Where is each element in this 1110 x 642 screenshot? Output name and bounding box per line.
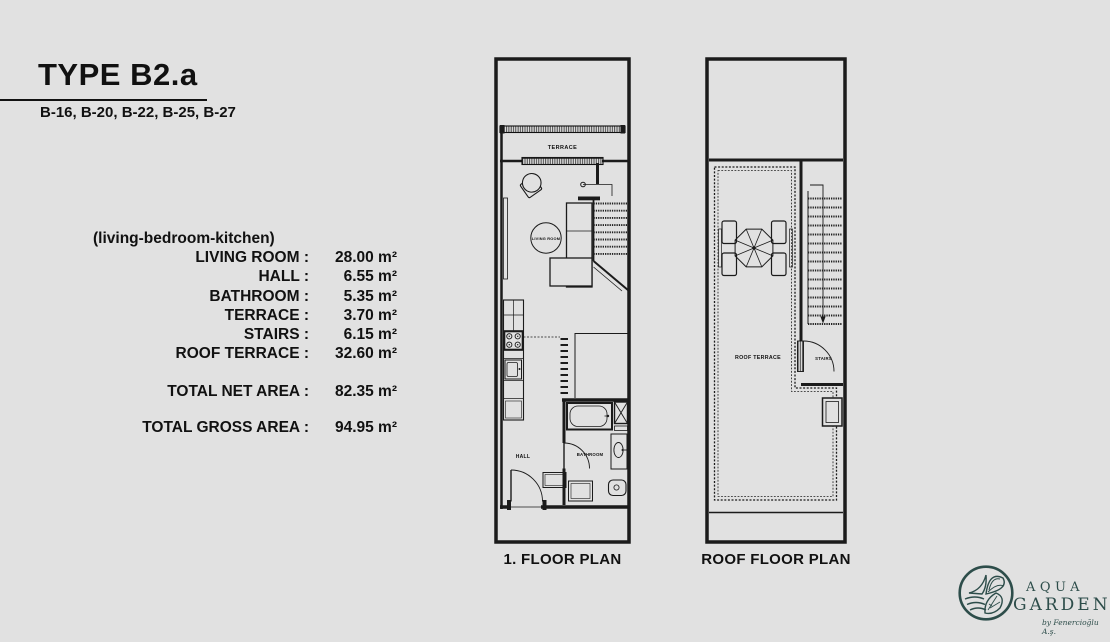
area-row: BATHROOM :5.35 m² (85, 287, 397, 306)
area-subtitle: (living-bedroom-kitchen) (85, 229, 397, 248)
terrace-window-railing (500, 158, 629, 165)
roof-floor-caption: ROOF FLOOR PLAN (695, 551, 857, 568)
area-value: 32.60 m² (309, 344, 397, 363)
coffee-table (550, 258, 592, 286)
washing-machine (569, 481, 593, 501)
area-table: (living-bedroom-kitchen) LIVING ROOM :28… (85, 229, 397, 437)
area-value: 6.15 m² (309, 325, 397, 344)
ac-unit-box (823, 398, 843, 426)
area-label: TERRACE : (85, 306, 309, 325)
leaf-sail (969, 575, 986, 594)
area-label: ROOF TERRACE : (85, 344, 309, 363)
shower-box (615, 402, 628, 431)
stair-direction-arrow (820, 317, 825, 324)
floor-plan-sheet: TYPE B2.a B-16, B-20, B-22, B-25, B-27 (… (0, 0, 1110, 642)
entrance-door (507, 470, 547, 510)
logo-name-line1: AQUA (1026, 580, 1084, 595)
unit-numbers: B-16, B-20, B-22, B-25, B-27 (40, 104, 236, 121)
water-line (967, 603, 985, 605)
area-row: TERRACE :3.70 m² (85, 306, 397, 325)
area-label: TOTAL GROSS AREA : (85, 418, 309, 437)
logo-emblem (956, 562, 1016, 624)
area-label: HALL : (85, 267, 309, 286)
roof-terrace-label: ROOF TERRACE (735, 355, 781, 361)
area-label: STAIRS : (85, 325, 309, 344)
logo-byline: by Fenercioğlu A.ş. (1042, 618, 1110, 636)
first-floor-caption: 1. FLOOR PLAN (494, 551, 631, 568)
terrace-label: TERRACE (548, 145, 577, 151)
area-value: 94.95 m² (309, 418, 397, 437)
water-line (970, 608, 986, 610)
area-label: LIVING ROOM : (85, 248, 309, 267)
area-row: LIVING ROOM :28.00 m² (85, 248, 397, 267)
area-value: 3.70 m² (309, 306, 397, 325)
page-title: TYPE B2.a (38, 57, 198, 93)
area-value: 6.55 m² (309, 267, 397, 286)
wardrobe (504, 198, 508, 279)
total-net-row: TOTAL NET AREA :82.35 m² (85, 382, 397, 401)
area-row: STAIRS :6.15 m² (85, 325, 397, 344)
first-floor-plan-drawing: TERRACE (494, 57, 631, 544)
area-value: 28.00 m² (309, 248, 397, 267)
area-value: 5.35 m² (309, 287, 397, 306)
wall-hatch-column (561, 338, 569, 394)
living-room-tag: LIVING ROOM (531, 223, 561, 253)
toilet (609, 480, 627, 496)
hall-label: HALL (516, 454, 531, 460)
leaf-veined (985, 593, 1002, 613)
bathroom-sink (611, 434, 627, 469)
living-room-label: LIVING ROOM (532, 236, 560, 241)
kitchen-sink (505, 360, 522, 379)
plot-boundary (707, 59, 845, 542)
title-underline (0, 99, 207, 101)
terrace-railing (500, 125, 625, 134)
logo-name-line2: GARDEN (1013, 595, 1110, 615)
area-label: BATHROOM : (85, 287, 309, 306)
under-stairs-area (575, 334, 628, 399)
roof-floor-plan-drawing: STAIRS ROOF TERRACE (705, 57, 847, 544)
stairs-label: STAIRS (815, 356, 832, 361)
stairs (808, 185, 842, 324)
area-row: ROOF TERRACE :32.60 m² (85, 344, 397, 363)
area-value: 82.35 m² (309, 382, 397, 401)
bathroom-label: BATHROOM (577, 452, 604, 457)
water-line (965, 597, 984, 599)
bathtub (567, 403, 612, 430)
area-row: HALL :6.55 m² (85, 267, 397, 286)
armchair (517, 170, 545, 198)
patio-umbrella-table (735, 229, 773, 267)
stove (505, 332, 523, 350)
total-gross-row: TOTAL GROSS AREA :94.95 m² (85, 418, 397, 437)
area-label: TOTAL NET AREA : (85, 382, 309, 401)
